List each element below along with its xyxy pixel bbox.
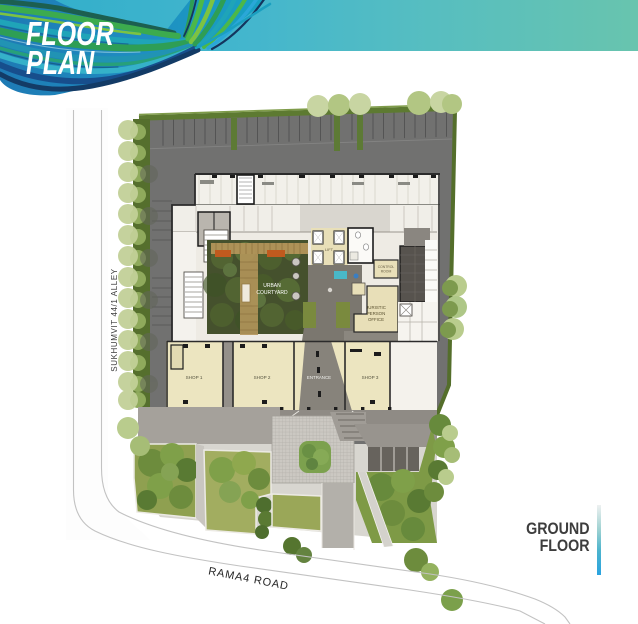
- svg-text:OFFICE: OFFICE: [368, 317, 384, 322]
- svg-text:SHOP 2: SHOP 2: [254, 375, 271, 380]
- svg-text:COURTYARD: COURTYARD: [256, 290, 288, 296]
- svg-text:URBAN: URBAN: [263, 283, 281, 289]
- svg-text:CONTROL: CONTROL: [378, 265, 395, 269]
- svg-text:ENTRANCE: ENTRANCE: [307, 375, 331, 380]
- svg-text:ROOM: ROOM: [381, 270, 392, 274]
- svg-text:JURISTIC: JURISTIC: [366, 305, 386, 310]
- svg-text:LIFT: LIFT: [325, 247, 334, 252]
- svg-text:SUKHUMVIT 44/1 ALLEY: SUKHUMVIT 44/1 ALLEY: [110, 268, 119, 372]
- svg-text:SHOP 1: SHOP 1: [186, 375, 203, 380]
- svg-text:SHOP 3: SHOP 3: [362, 375, 379, 380]
- svg-text:PERSON: PERSON: [367, 311, 386, 316]
